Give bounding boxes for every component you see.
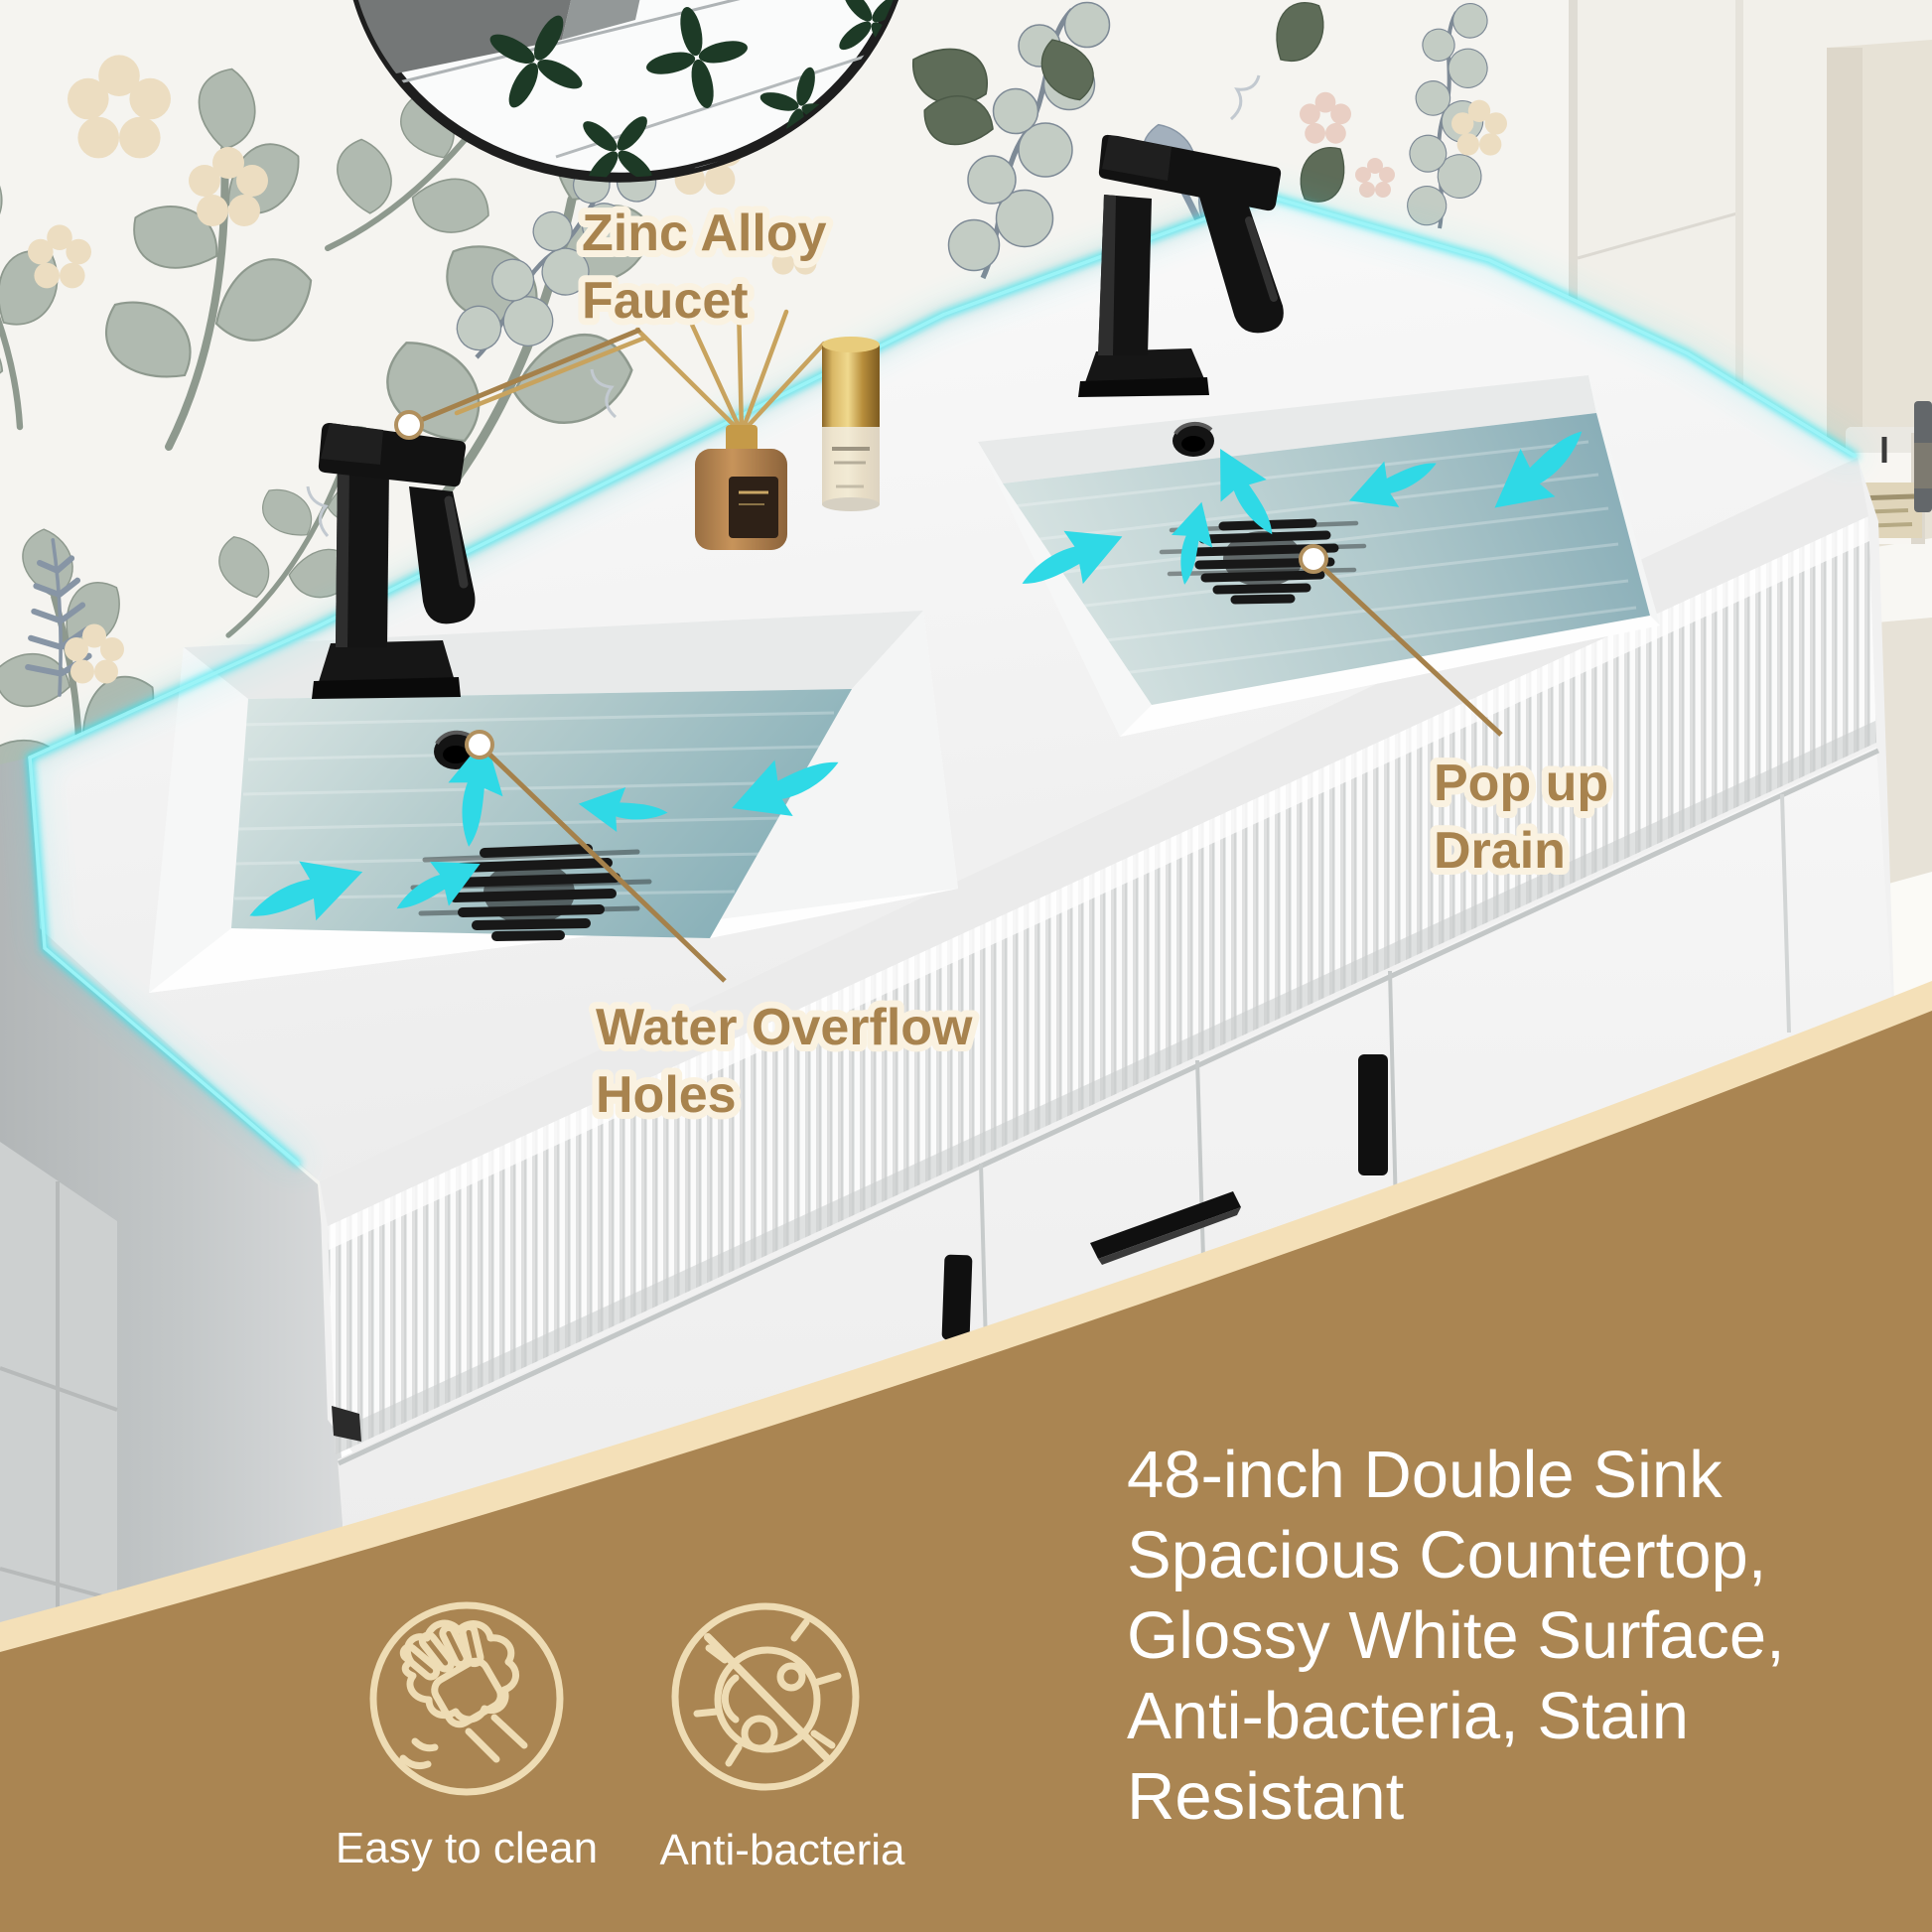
svg-text:Zinc Alloy: Zinc Alloy [582,205,827,262]
svg-text:Pop up: Pop up [1434,755,1608,812]
svg-text:Faucet: Faucet [582,272,749,330]
svg-text:Anti-bacteria: Anti-bacteria [659,1826,905,1874]
svg-text:Anti-bacteria, Stain: Anti-bacteria, Stain [1127,1679,1689,1753]
svg-text:Drain: Drain [1434,822,1566,880]
svg-text:Glossy White Surface,: Glossy White Surface, [1127,1598,1785,1673]
svg-text:48-inch Double Sink: 48-inch Double Sink [1127,1438,1723,1512]
svg-text:Water Overflow: Water Overflow [596,999,973,1056]
svg-text:Resistant: Resistant [1127,1759,1405,1834]
svg-text:Spacious Countertop,: Spacious Countertop, [1127,1518,1766,1592]
svg-text:Holes: Holes [596,1066,737,1124]
svg-text:Easy to clean: Easy to clean [336,1824,598,1872]
